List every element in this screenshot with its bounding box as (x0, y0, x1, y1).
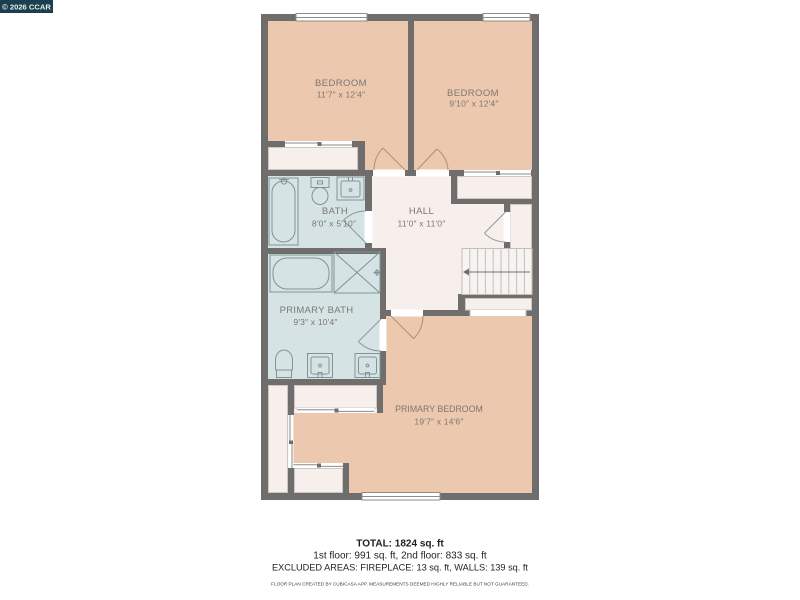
svg-text:© 2026 CCAR: © 2026 CCAR (2, 2, 51, 11)
svg-text:1st floor: 991 sq. ft, 2nd flo: 1st floor: 991 sq. ft, 2nd floor: 833 sq… (313, 551, 487, 562)
svg-text:BEDROOM: BEDROOM (315, 78, 367, 89)
svg-text:PRIMARY BATH: PRIMARY BATH (280, 305, 354, 316)
svg-text:11′0″ x 11′0″: 11′0″ x 11′0″ (398, 219, 446, 229)
svg-text:PRIMARY BEDROOM: PRIMARY BEDROOM (395, 404, 483, 414)
svg-text:19′7″ x 14′6″: 19′7″ x 14′6″ (414, 417, 463, 427)
svg-text:FLOOR PLAN CREATED BY CUBICASA: FLOOR PLAN CREATED BY CUBICASA APP. MEAS… (271, 582, 529, 587)
svg-text:EXCLUDED AREAS: FIREPLACE: 13: EXCLUDED AREAS: FIREPLACE: 13 sq. ft, WA… (272, 563, 528, 573)
svg-text:8′0″ x 5′10″: 8′0″ x 5′10″ (312, 219, 356, 229)
svg-text:9′10″ x 12′4″: 9′10″ x 12′4″ (449, 99, 498, 109)
svg-text:BATH: BATH (322, 206, 348, 217)
svg-text:TOTAL: 1824 sq. ft: TOTAL: 1824 sq. ft (356, 539, 444, 550)
svg-text:HALL: HALL (409, 206, 434, 217)
svg-text:9′3″ x 10′4″: 9′3″ x 10′4″ (293, 317, 337, 327)
svg-text:11′7″ x 12′4″: 11′7″ x 12′4″ (317, 90, 366, 100)
svg-text:BEDROOM: BEDROOM (447, 88, 499, 99)
